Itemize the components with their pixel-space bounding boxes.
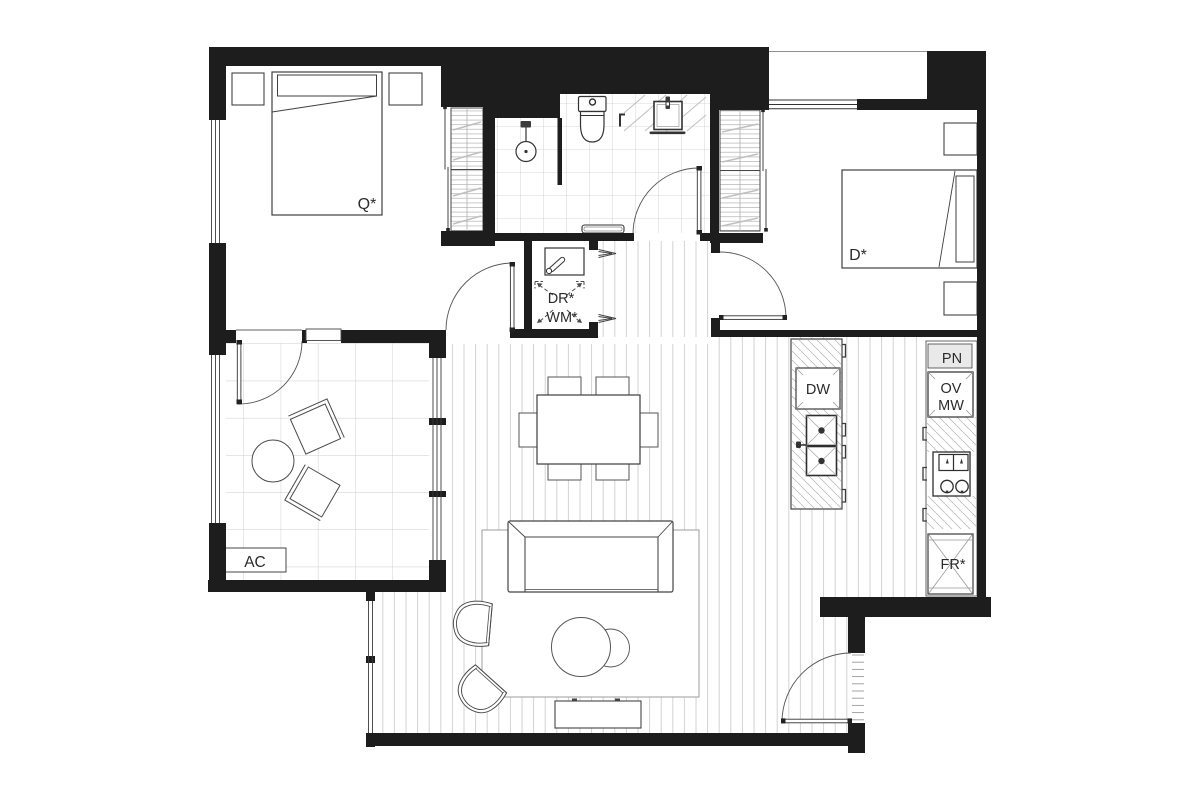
svg-text:Q*: Q* <box>358 196 377 213</box>
svg-text:OV: OV <box>941 381 962 397</box>
svg-text:DR*: DR* <box>548 291 575 307</box>
svg-text:AC: AC <box>244 554 266 571</box>
svg-text:PN: PN <box>942 351 962 367</box>
svg-text:MW: MW <box>938 398 964 414</box>
svg-text:WM*: WM* <box>546 310 578 326</box>
svg-text:FR*: FR* <box>941 557 966 573</box>
svg-text:D*: D* <box>849 247 867 264</box>
svg-text:DW: DW <box>806 382 830 398</box>
